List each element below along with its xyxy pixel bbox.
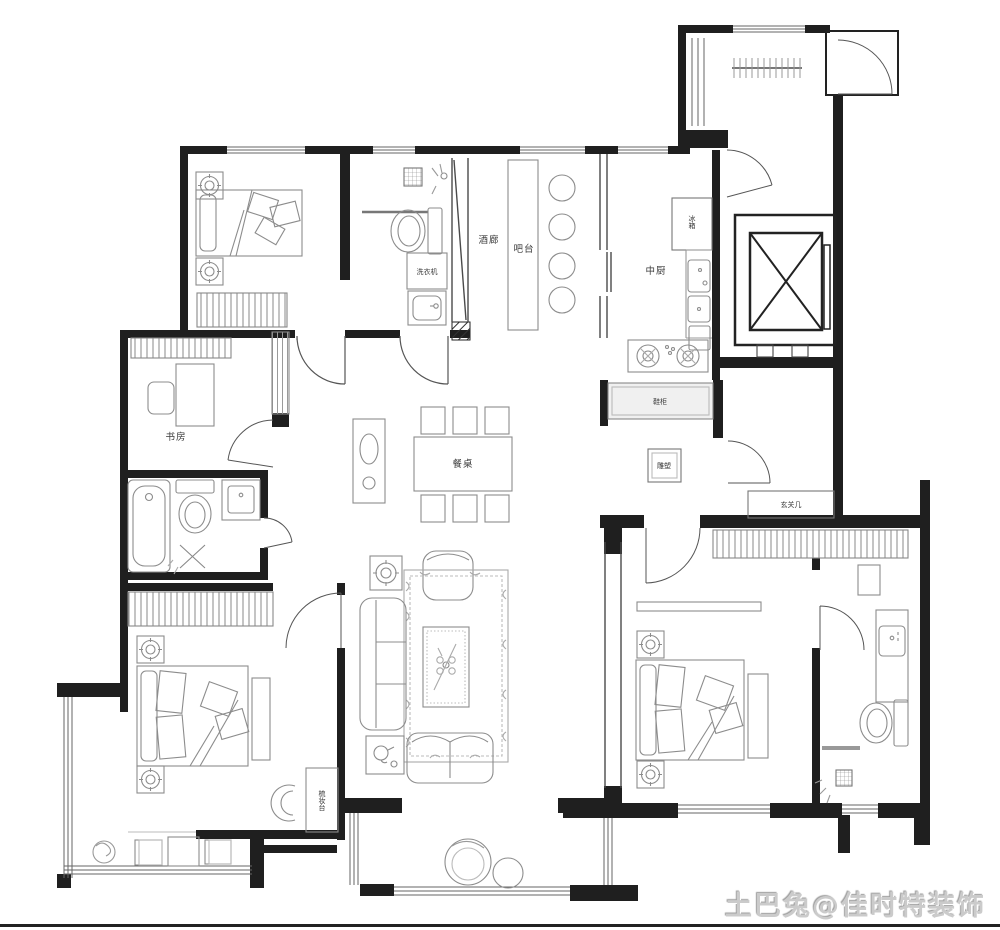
bed-bench-icon (252, 678, 270, 760)
bathroom-sink-icon (408, 291, 446, 325)
label-dining-table: 餐桌 (452, 458, 473, 470)
toilet-icon (860, 700, 908, 746)
window-entry (733, 26, 805, 32)
kitchen-counter (686, 250, 712, 350)
door-bedroom2 (646, 528, 700, 583)
bed-icon (636, 660, 744, 760)
entry-mat-icon (732, 58, 802, 78)
label-dressing-table: 梳妆台 (318, 789, 326, 812)
floor-plan-page: 酒廊 吧台 中厨 冰箱 洗衣机 书房 鞋柜 雕塑 玄关几 餐桌 梳妆台 土巴兔@… (0, 0, 1000, 930)
bed-icon (137, 666, 249, 766)
sofa-icon (360, 598, 406, 730)
bed-bench-icon (748, 674, 768, 758)
door-master-bedroom (286, 593, 341, 648)
window-kitchen (618, 147, 668, 153)
wardrobe-icon (713, 530, 908, 558)
dining-chair-icon (453, 495, 477, 522)
door-bath1 (400, 336, 448, 384)
floor-plan-svg: 酒廊 吧台 中厨 冰箱 洗衣机 书房 鞋柜 雕塑 玄关几 餐桌 梳妆台 (0, 0, 1000, 930)
label-fridge: 冰箱 (688, 214, 696, 230)
nightstand-icon (637, 761, 664, 788)
window-top-3 (520, 147, 585, 153)
bar-stool-icon (549, 214, 575, 240)
label-entry-console: 玄关几 (781, 500, 802, 509)
bar-stool-icon (549, 175, 575, 201)
toilet-icon (391, 208, 442, 254)
vanity-sink-icon (222, 480, 260, 520)
coffee-table-icon (423, 627, 469, 707)
balcony-plant-icon (93, 841, 115, 863)
bathtub-icon (128, 480, 170, 572)
shower-head-icon (404, 164, 447, 194)
vanity-sink-icon (876, 610, 908, 702)
tea-table-icon (366, 736, 404, 774)
bookshelf-icon (131, 338, 231, 358)
tv-shelf-icon (637, 602, 761, 611)
door-study (228, 420, 273, 467)
door-bath3 (820, 606, 864, 650)
label-bar-counter: 吧台 (513, 243, 534, 255)
nightstand-icon (196, 258, 223, 285)
stove-icon (628, 340, 708, 372)
bar-stool-icon (549, 287, 575, 313)
door-bedroom1 (297, 336, 345, 384)
cabinet-icon (858, 565, 880, 595)
floor-drain-icon (168, 545, 205, 574)
elevator-icon (735, 215, 835, 357)
label-kitchen: 中厨 (645, 265, 666, 277)
desk-icon (148, 364, 214, 426)
side-table-lamp-icon (370, 556, 402, 590)
nightstand-icon (137, 636, 164, 663)
balcony-seat-icon (205, 840, 231, 864)
balcony-seat-icon (135, 840, 162, 865)
watermark: 土巴兔@佳时特装饰 (725, 884, 986, 923)
window-top-1 (227, 147, 305, 153)
window-balcony-center (394, 887, 570, 895)
label-study: 书房 (165, 431, 186, 443)
wardrobe-icon (197, 293, 287, 327)
window-balcony-left-v (64, 697, 72, 878)
window-balcony-center-left (350, 813, 358, 885)
toilet-icon (176, 480, 214, 533)
dining-chair-icon (421, 407, 445, 434)
door-entry-main (838, 40, 892, 94)
window-bedroom2-b (842, 805, 878, 813)
dining-chair-icon (453, 407, 477, 434)
hall-cabinet-icon (272, 332, 289, 414)
round-chair-icon (445, 839, 491, 885)
shower-drain-icon (815, 770, 852, 803)
window-balcony-left-h (64, 866, 252, 874)
walls (0, 25, 1000, 927)
towel-bar (822, 746, 860, 750)
door-hallway (728, 441, 770, 483)
label-sculpture: 雕塑 (657, 461, 671, 470)
round-stool-icon (493, 858, 523, 888)
door-bath2 (264, 518, 292, 548)
label-wine-lounge: 酒廊 (478, 234, 499, 246)
label-shoe-cabinet: 鞋柜 (653, 397, 667, 406)
wardrobe-icon (128, 592, 273, 626)
window-bedroom2-a (678, 805, 770, 813)
dining-chair-icon (485, 407, 509, 434)
window-balcony-center-right (604, 818, 612, 885)
label-washing-machine: 洗衣机 (417, 267, 438, 276)
window-top-2 (373, 147, 415, 153)
bed-icon (196, 190, 302, 256)
doors (128, 40, 892, 832)
door-entry-corridor (727, 150, 772, 197)
dining-chair-icon (485, 495, 509, 522)
sideboard-icon (353, 419, 385, 503)
window-entry-inner (692, 38, 704, 126)
loveseat-icon (407, 733, 493, 783)
bar-stool-icon (549, 253, 575, 279)
balcony-table-icon (168, 837, 199, 866)
nightstand-icon (637, 631, 664, 658)
nightstand-icon (137, 766, 164, 793)
dressing-stool-icon (271, 785, 295, 821)
dining-chair-icon (421, 495, 445, 522)
